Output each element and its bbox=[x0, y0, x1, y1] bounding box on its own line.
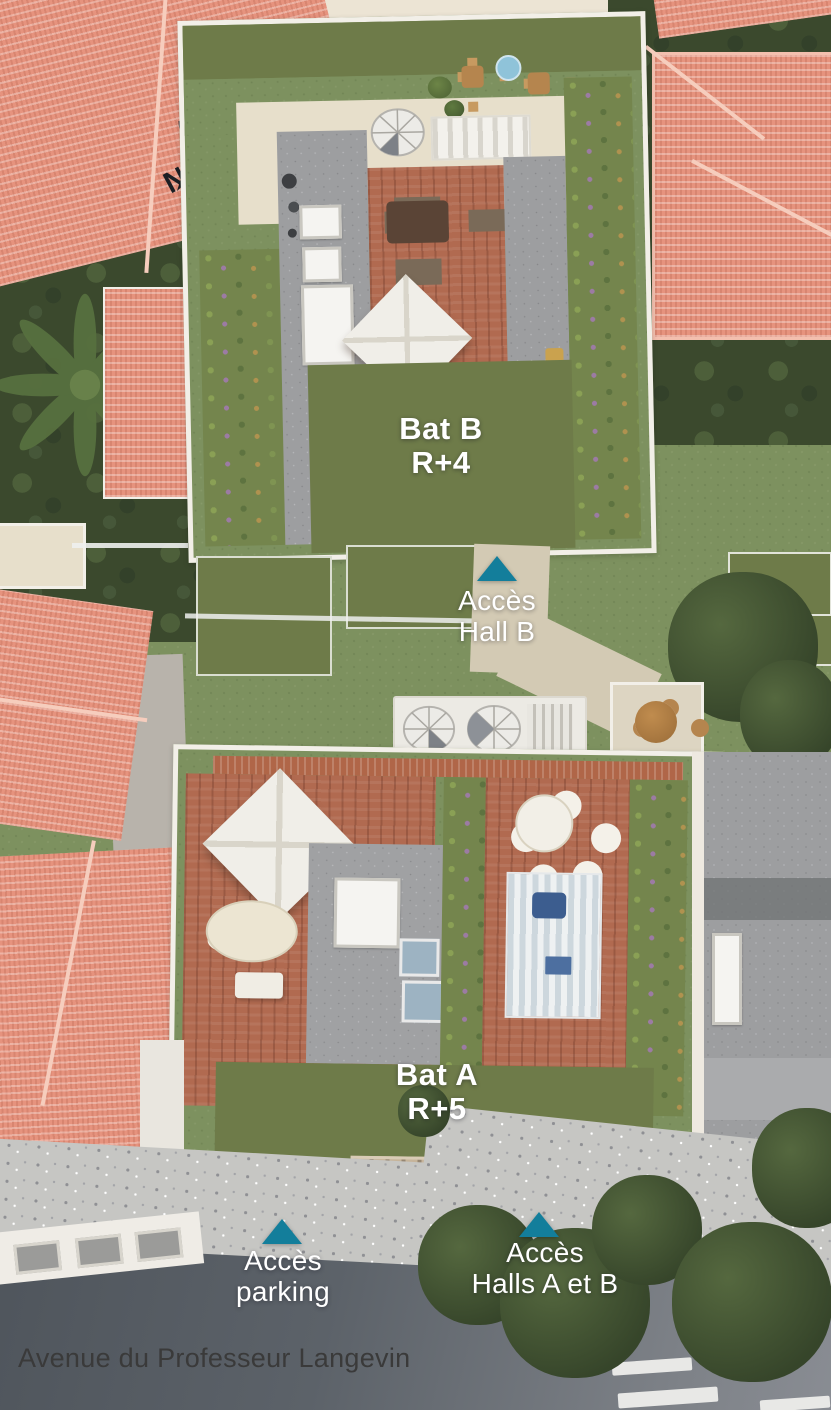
window bbox=[135, 1227, 184, 1262]
skylight bbox=[334, 877, 401, 948]
roof-top-right bbox=[652, 52, 831, 340]
spiral-staircase bbox=[368, 107, 427, 158]
skylight bbox=[402, 980, 445, 1023]
roof-ridge bbox=[645, 45, 766, 141]
oval-dining-table bbox=[205, 900, 298, 963]
building-b-label: Bat B R+4 bbox=[341, 412, 541, 480]
building-a-name: Bat A bbox=[337, 1058, 537, 1092]
skylight bbox=[712, 933, 742, 1025]
bistro-table bbox=[528, 72, 550, 94]
skylight bbox=[299, 205, 342, 240]
planted-border bbox=[199, 249, 285, 547]
access-label-line: Accès bbox=[407, 586, 587, 617]
halls-ab-access-marker-icon bbox=[519, 1212, 559, 1237]
round-garden-table bbox=[635, 701, 677, 743]
flower-hedge bbox=[182, 16, 641, 80]
access-label-line: parking bbox=[183, 1277, 383, 1308]
parking-access-marker-icon bbox=[262, 1219, 302, 1244]
small-terrace-left bbox=[0, 523, 86, 589]
site-plan-aerial-view: N bbox=[0, 0, 831, 1410]
building-b-name: Bat B bbox=[341, 412, 541, 446]
building-a-label: Bat A R+5 bbox=[337, 1058, 537, 1126]
roof-annex-left bbox=[103, 287, 195, 499]
street-name-label: Avenue du Professeur Langevin bbox=[18, 1344, 538, 1374]
access-label-line: Accès bbox=[425, 1238, 665, 1269]
skylight bbox=[302, 247, 342, 283]
planted-border bbox=[625, 780, 688, 1117]
hall-b-access-label: Accès Hall B bbox=[407, 586, 587, 648]
garden-wall bbox=[72, 543, 188, 548]
lounge-cushions bbox=[532, 892, 566, 918]
white-pergola bbox=[430, 115, 531, 161]
access-label-line: Hall B bbox=[407, 617, 587, 648]
building-b-floors: R+4 bbox=[341, 446, 541, 480]
parking-access-label: Accès parking bbox=[183, 1246, 383, 1308]
hall-b-access-marker-icon bbox=[477, 556, 517, 581]
halls-ab-access-label: Accès Halls A et B bbox=[425, 1238, 665, 1300]
sun-lounger bbox=[235, 972, 283, 999]
bistro-table bbox=[461, 66, 483, 88]
access-label-line: Halls A et B bbox=[425, 1269, 665, 1300]
skylight bbox=[301, 284, 355, 365]
tree bbox=[672, 1222, 831, 1382]
dining-table bbox=[386, 200, 449, 243]
access-label-line: Accès bbox=[183, 1246, 383, 1277]
roof-level-step bbox=[704, 878, 831, 920]
roof-ridge bbox=[691, 159, 831, 256]
planted-border bbox=[564, 76, 642, 539]
building-a-floors: R+5 bbox=[337, 1092, 537, 1126]
window bbox=[75, 1234, 124, 1269]
window bbox=[13, 1240, 62, 1275]
roof-ridge bbox=[0, 695, 147, 722]
stair-steps bbox=[527, 704, 573, 754]
roof-ridge bbox=[41, 840, 96, 1105]
skylight bbox=[399, 938, 440, 977]
